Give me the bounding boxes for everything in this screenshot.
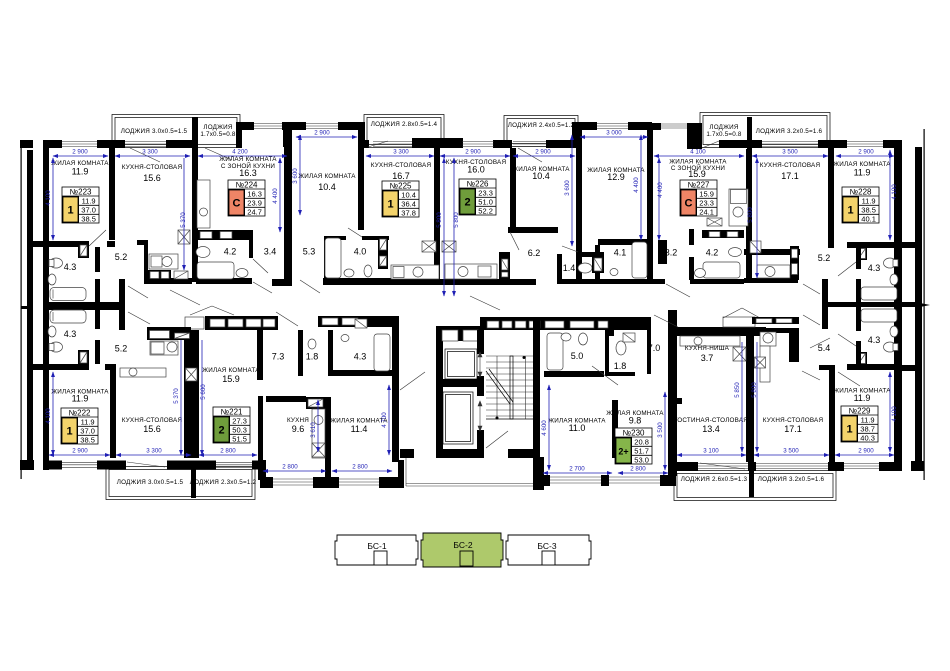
- svg-text:ЛОДЖИЯ 2.3х0.5=1.2: ЛОДЖИЯ 2.3х0.5=1.2: [190, 479, 257, 486]
- svg-text:№229: №229: [849, 407, 871, 416]
- svg-text:53.0: 53.0: [634, 456, 649, 465]
- svg-text:3 610: 3 610: [310, 422, 317, 438]
- svg-text:4.3: 4.3: [64, 262, 77, 272]
- svg-text:ЖИЛАЯ КОМНАТА: ЖИЛАЯ КОМНАТА: [202, 367, 260, 374]
- svg-text:11.9: 11.9: [854, 168, 871, 178]
- svg-text:2 900: 2 900: [465, 149, 481, 156]
- svg-text:4 200: 4 200: [232, 149, 248, 156]
- svg-text:4 100: 4 100: [690, 149, 706, 156]
- svg-text:11.4: 11.4: [351, 424, 368, 434]
- svg-text:3 500: 3 500: [783, 448, 799, 455]
- svg-text:2 800: 2 800: [282, 464, 298, 471]
- svg-text:11.9: 11.9: [72, 394, 89, 404]
- svg-text:1: 1: [847, 205, 853, 217]
- svg-text:4.3: 4.3: [354, 352, 367, 362]
- svg-text:2 900: 2 900: [72, 149, 88, 156]
- svg-text:№225: №225: [390, 182, 412, 191]
- svg-text:20.8: 20.8: [634, 438, 649, 447]
- svg-text:3 000: 3 000: [606, 130, 622, 137]
- svg-text:ЛОДЖИЯ 2.6х0.5=1.3: ЛОДЖИЯ 2.6х0.5=1.3: [681, 476, 748, 483]
- svg-text:5.0: 5.0: [571, 351, 584, 361]
- svg-text:51.7: 51.7: [634, 447, 649, 456]
- svg-text:23.9: 23.9: [247, 199, 262, 208]
- svg-text:4.3: 4.3: [64, 329, 77, 339]
- svg-text:17.1: 17.1: [784, 424, 802, 434]
- svg-text:3.2: 3.2: [665, 248, 678, 258]
- svg-text:37.0: 37.0: [81, 206, 96, 215]
- svg-text:15.6: 15.6: [143, 173, 161, 183]
- svg-text:5 370: 5 370: [173, 388, 180, 404]
- svg-text:2 800: 2 800: [352, 464, 368, 471]
- svg-text:15.9: 15.9: [699, 190, 714, 199]
- svg-text:5.2: 5.2: [818, 253, 831, 263]
- svg-text:50.3: 50.3: [232, 426, 247, 435]
- svg-text:3 500: 3 500: [657, 422, 664, 438]
- svg-text:11.9: 11.9: [82, 197, 96, 206]
- svg-text:КУХНЯ-СТОЛОВАЯ: КУХНЯ-СТОЛОВАЯ: [760, 162, 821, 169]
- svg-text:38.5: 38.5: [80, 436, 95, 445]
- svg-text:БС-3: БС-3: [537, 541, 556, 551]
- svg-text:3 300: 3 300: [142, 149, 158, 156]
- svg-text:5 800: 5 800: [751, 382, 758, 398]
- svg-text:12.9: 12.9: [607, 172, 625, 182]
- svg-text:1.7х0.5=0.8: 1.7х0.5=0.8: [706, 131, 742, 138]
- svg-text:51.5: 51.5: [232, 435, 247, 444]
- svg-text:2 900: 2 900: [858, 149, 874, 156]
- svg-text:5 850: 5 850: [734, 382, 741, 398]
- svg-text:КУХНЯ-СТОЛОВАЯ: КУХНЯ-СТОЛОВАЯ: [371, 162, 432, 169]
- svg-text:ЖИЛАЯ КОМНАТА: ЖИЛАЯ КОМНАТА: [298, 173, 356, 180]
- svg-text:7.0: 7.0: [648, 343, 661, 353]
- svg-text:23.3: 23.3: [478, 189, 493, 198]
- svg-text:ЛОДЖИЯ 3.2х0.5=1.6: ЛОДЖИЯ 3.2х0.5=1.6: [756, 128, 823, 135]
- svg-text:3 600: 3 600: [564, 180, 571, 196]
- svg-text:4.1: 4.1: [614, 248, 627, 258]
- svg-text:№228: №228: [850, 188, 872, 197]
- svg-text:1.7х0.5=0.8: 1.7х0.5=0.8: [200, 131, 236, 138]
- svg-text:13.4: 13.4: [702, 424, 720, 434]
- svg-text:4 100: 4 100: [891, 406, 898, 422]
- svg-text:3.4: 3.4: [264, 247, 277, 257]
- svg-text:23.3: 23.3: [699, 199, 714, 208]
- svg-text:4 600: 4 600: [541, 420, 548, 436]
- svg-text:11.9: 11.9: [861, 416, 875, 425]
- svg-text:16.0: 16.0: [467, 165, 485, 175]
- svg-text:3 600: 3 600: [292, 168, 299, 184]
- svg-text:5 800: 5 800: [453, 212, 460, 228]
- svg-text:40.1: 40.1: [861, 215, 876, 224]
- svg-text:№222: №222: [69, 409, 91, 418]
- svg-text:9.8: 9.8: [629, 416, 642, 426]
- svg-text:40.3: 40.3: [860, 434, 875, 443]
- svg-text:4 700: 4 700: [381, 412, 388, 428]
- svg-text:4 100: 4 100: [45, 190, 52, 206]
- svg-text:4.2: 4.2: [706, 248, 719, 258]
- svg-text:10.4: 10.4: [532, 171, 550, 181]
- svg-text:ЖИЛАЯ КОМНАТА: ЖИЛАЯ КОМНАТА: [219, 156, 277, 163]
- svg-text:4 400: 4 400: [657, 182, 664, 198]
- svg-text:ЛОДЖИЯ 3.2х0.5=1.6: ЛОДЖИЯ 3.2х0.5=1.6: [758, 476, 825, 483]
- svg-text:4 100: 4 100: [891, 184, 898, 200]
- svg-text:2 800: 2 800: [630, 466, 646, 473]
- svg-text:4.2: 4.2: [224, 247, 237, 257]
- svg-text:1: 1: [846, 424, 852, 436]
- svg-text:3 500: 3 500: [782, 149, 798, 156]
- svg-text:4.0: 4.0: [354, 247, 367, 257]
- svg-text:БС-2: БС-2: [453, 540, 472, 550]
- svg-text:17.1: 17.1: [781, 171, 799, 181]
- svg-text:С: С: [685, 198, 693, 210]
- svg-text:2: 2: [464, 197, 470, 209]
- svg-text:36.4: 36.4: [401, 200, 416, 209]
- svg-text:7.3: 7.3: [272, 352, 285, 362]
- svg-text:2: 2: [218, 425, 224, 437]
- svg-text:5.2: 5.2: [115, 252, 128, 262]
- svg-text:10.4: 10.4: [318, 182, 336, 192]
- svg-text:ЛОДЖИЯ 2.4х0.5=1.2: ЛОДЖИЯ 2.4х0.5=1.2: [508, 122, 575, 129]
- svg-text:11.9: 11.9: [854, 393, 871, 403]
- svg-text:1: 1: [387, 199, 393, 211]
- svg-text:КУХНЯ-СТОЛОВАЯ: КУХНЯ-СТОЛОВАЯ: [122, 164, 183, 171]
- svg-text:11.9: 11.9: [81, 418, 95, 427]
- svg-text:4.3: 4.3: [868, 263, 881, 273]
- svg-text:С: С: [233, 198, 241, 210]
- svg-text:15.9: 15.9: [222, 374, 240, 384]
- svg-text:ЛОДЖИЯ: ЛОДЖИЯ: [203, 124, 232, 131]
- svg-text:52.2: 52.2: [478, 207, 493, 216]
- svg-text:1.8: 1.8: [306, 352, 319, 362]
- svg-text:5.4: 5.4: [818, 343, 831, 353]
- svg-text:КУХНЯ-СТОЛОВАЯ: КУХНЯ-СТОЛОВАЯ: [763, 417, 824, 424]
- svg-text:5 600: 5 600: [200, 384, 207, 400]
- svg-text:2 900: 2 900: [314, 130, 330, 137]
- svg-text:ЛОДЖИЯ: ЛОДЖИЯ: [709, 124, 738, 131]
- svg-text:4.3: 4.3: [868, 335, 881, 345]
- svg-text:КУХНЯ-НИША: КУХНЯ-НИША: [685, 345, 730, 352]
- svg-text:2 700: 2 700: [569, 466, 585, 473]
- svg-text:№223: №223: [70, 188, 92, 197]
- svg-text:3 100: 3 100: [703, 448, 719, 455]
- svg-text:ЛОДЖИЯ 3.0х0.5=1.5: ЛОДЖИЯ 3.0х0.5=1.5: [117, 479, 184, 486]
- svg-text:16.3: 16.3: [239, 168, 257, 178]
- svg-text:2+: 2+: [618, 447, 628, 457]
- svg-text:51.0: 51.0: [478, 198, 493, 207]
- svg-text:11.9: 11.9: [72, 167, 89, 177]
- svg-text:1.4: 1.4: [563, 263, 576, 273]
- svg-text:10.4: 10.4: [401, 191, 416, 200]
- svg-text:5 370: 5 370: [180, 212, 187, 228]
- svg-text:4 100: 4 100: [45, 408, 52, 424]
- svg-text:ЛОДЖИЯ 3.0х0.5=1.5: ЛОДЖИЯ 3.0х0.5=1.5: [121, 128, 188, 135]
- svg-text:№230: №230: [623, 429, 645, 438]
- svg-text:5.2: 5.2: [115, 344, 128, 354]
- svg-text:5.3: 5.3: [303, 247, 316, 257]
- svg-text:№226: №226: [467, 180, 489, 189]
- svg-text:ГОСТИНАЯ-СТОЛОВАЯ: ГОСТИНАЯ-СТОЛОВАЯ: [674, 417, 748, 424]
- svg-text:№224: №224: [236, 181, 258, 190]
- svg-text:11.9: 11.9: [862, 197, 876, 206]
- svg-text:3 300: 3 300: [146, 448, 162, 455]
- svg-text:3 300: 3 300: [393, 149, 409, 156]
- svg-text:2 900: 2 900: [858, 448, 874, 455]
- svg-text:ЛОДЖИЯ 2.8х0.5=1.4: ЛОДЖИЯ 2.8х0.5=1.4: [371, 121, 438, 128]
- svg-text:1: 1: [67, 205, 73, 217]
- svg-text:КУХНЯ: КУХНЯ: [287, 417, 309, 424]
- svg-text:15.6: 15.6: [143, 424, 161, 434]
- svg-text:2 900: 2 900: [535, 149, 551, 156]
- svg-text:11.0: 11.0: [569, 423, 586, 433]
- svg-text:37.8: 37.8: [401, 209, 416, 218]
- svg-text:24.7: 24.7: [247, 208, 262, 217]
- svg-text:5 800: 5 800: [436, 212, 443, 228]
- svg-text:№227: №227: [688, 181, 710, 190]
- svg-text:6.2: 6.2: [528, 248, 541, 258]
- svg-text:№221: №221: [221, 408, 243, 417]
- svg-text:37.0: 37.0: [80, 427, 95, 436]
- svg-text:27.3: 27.3: [232, 417, 247, 426]
- svg-text:38.7: 38.7: [860, 425, 875, 434]
- svg-text:16.3: 16.3: [247, 190, 262, 199]
- svg-text:5 800: 5 800: [747, 207, 754, 223]
- svg-text:1: 1: [66, 426, 72, 438]
- svg-text:1.8: 1.8: [614, 361, 627, 371]
- svg-text:9.6: 9.6: [292, 424, 305, 434]
- svg-text:38.5: 38.5: [861, 206, 876, 215]
- svg-text:16.7: 16.7: [392, 171, 410, 181]
- svg-text:4 400: 4 400: [272, 188, 279, 204]
- svg-text:2 800: 2 800: [220, 448, 236, 455]
- svg-text:КУХНЯ-СТОЛОВАЯ: КУХНЯ-СТОЛОВАЯ: [122, 417, 183, 424]
- svg-text:БС-1: БС-1: [367, 541, 386, 551]
- svg-text:4 400: 4 400: [633, 177, 640, 193]
- svg-text:3.7: 3.7: [701, 353, 714, 363]
- svg-text:2 900: 2 900: [72, 448, 88, 455]
- svg-text:24.1: 24.1: [699, 208, 714, 217]
- svg-text:15.9: 15.9: [688, 169, 706, 179]
- svg-text:38.5: 38.5: [81, 215, 96, 224]
